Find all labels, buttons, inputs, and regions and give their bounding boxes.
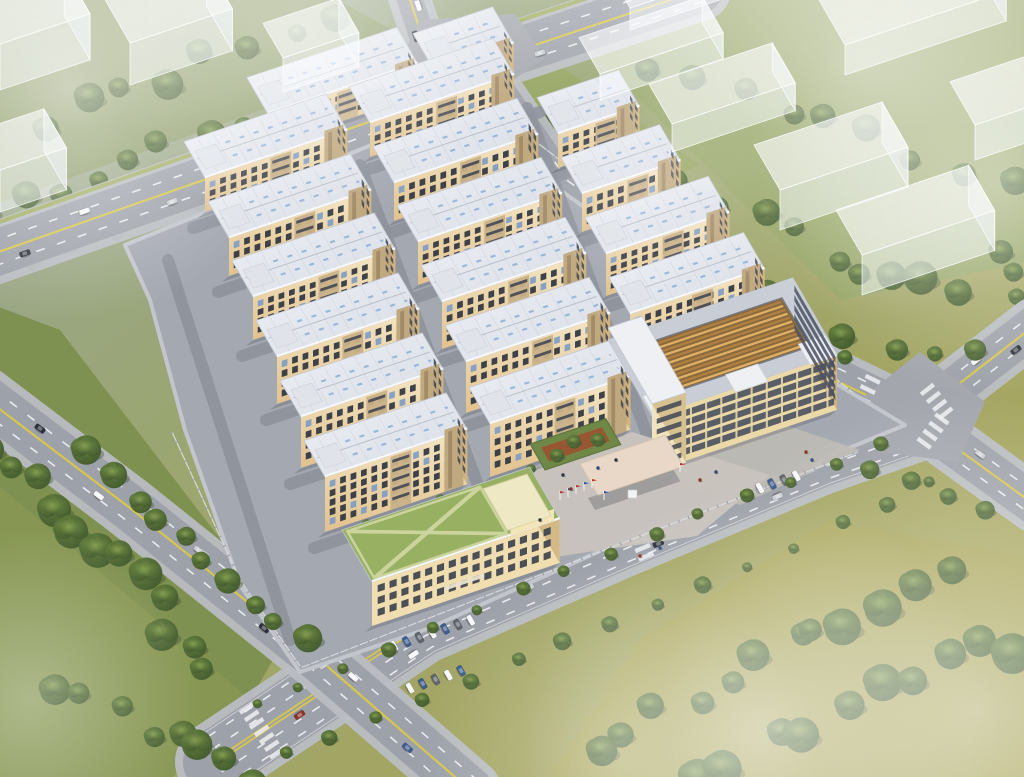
person <box>596 466 599 469</box>
person <box>698 478 701 481</box>
person <box>538 518 541 521</box>
aerial-rendering-stage <box>0 0 1024 777</box>
person <box>569 487 572 490</box>
aerial-rendering <box>0 0 1024 777</box>
person <box>614 458 617 461</box>
person <box>561 473 564 476</box>
person <box>714 470 717 473</box>
